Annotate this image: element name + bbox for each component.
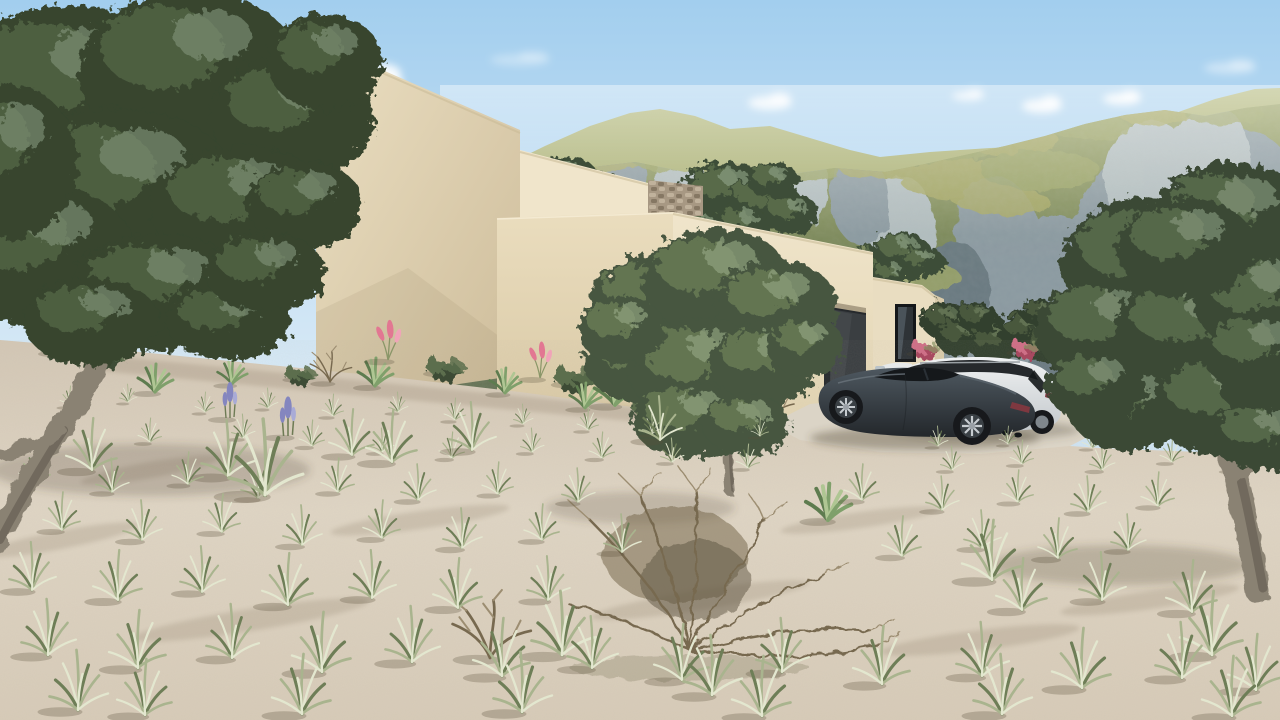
grass-shadow bbox=[1135, 505, 1161, 510]
grass-shadow bbox=[1084, 470, 1104, 474]
grass-shadow bbox=[510, 424, 525, 427]
canopy-highlight bbox=[256, 242, 298, 266]
canopy-highlight bbox=[787, 198, 807, 211]
canopy-highlight bbox=[769, 167, 787, 178]
grass-shadow bbox=[1064, 511, 1091, 517]
grass-shadow bbox=[1104, 549, 1131, 555]
cloud bbox=[1229, 59, 1255, 69]
plant-shadow bbox=[208, 417, 236, 423]
canopy-highlight bbox=[146, 249, 210, 284]
coupe-front-wheel bbox=[829, 390, 863, 424]
canopy-highlight bbox=[767, 272, 810, 300]
grass-shadow bbox=[166, 483, 190, 488]
canopy-highlight bbox=[1089, 359, 1124, 381]
grass-shadow bbox=[875, 555, 905, 561]
grass-shadow bbox=[476, 493, 500, 498]
grass-shadow bbox=[356, 537, 385, 543]
grass-shadow bbox=[516, 452, 534, 456]
grass-shadow bbox=[394, 499, 421, 505]
coupe-rear-wheel bbox=[953, 407, 991, 445]
cloud bbox=[519, 51, 549, 61]
grass-shadow bbox=[748, 437, 762, 440]
grass-shadow bbox=[1031, 557, 1061, 563]
grass-shadow bbox=[656, 462, 674, 466]
canopy-highlight bbox=[940, 307, 957, 318]
canopy-highlight bbox=[888, 265, 903, 273]
grass-shadow bbox=[936, 470, 954, 474]
grass-shadow bbox=[134, 442, 152, 446]
grass-shadow bbox=[36, 529, 65, 535]
grass-shadow bbox=[518, 539, 545, 545]
rendered-scene bbox=[0, 0, 1280, 720]
grass-shadow bbox=[116, 403, 130, 406]
canopy-highlight bbox=[1176, 211, 1225, 241]
grass-shadow bbox=[89, 491, 115, 496]
canopy-highlight bbox=[919, 251, 935, 260]
grass-shadow bbox=[732, 468, 750, 472]
grass-shadow bbox=[294, 446, 314, 450]
grass-shadow bbox=[1079, 448, 1094, 451]
grass-shadow bbox=[318, 416, 335, 420]
plant-shadow bbox=[310, 381, 335, 386]
canopy-highlight bbox=[897, 237, 917, 248]
grass-shadow bbox=[1006, 464, 1024, 468]
canopy-highlight bbox=[316, 26, 357, 55]
grass-shadow bbox=[315, 491, 341, 496]
canopy-highlight bbox=[800, 324, 827, 342]
roof-rail bbox=[920, 362, 1020, 363]
grass-shadow bbox=[584, 458, 604, 462]
grass-shadow bbox=[255, 408, 270, 411]
canopy-highlight bbox=[82, 289, 130, 315]
grass-shadow bbox=[196, 531, 225, 537]
canopy-highlight bbox=[738, 211, 758, 222]
grass-shadow bbox=[573, 430, 590, 434]
canopy-highlight bbox=[615, 305, 646, 325]
grass-shadow bbox=[996, 501, 1020, 506]
canopy-highlight bbox=[739, 401, 770, 420]
canopy-highlight bbox=[173, 10, 251, 59]
grass-shadow bbox=[996, 445, 1010, 448]
grass-shadow bbox=[440, 420, 457, 424]
grass-shadow bbox=[919, 509, 945, 514]
grass-shadow bbox=[925, 446, 940, 449]
grass-shadow bbox=[434, 458, 454, 462]
plant-shadow bbox=[364, 359, 395, 366]
canopy-highlight bbox=[296, 172, 337, 198]
plant-shadow bbox=[518, 377, 546, 383]
grass-shadow bbox=[192, 412, 207, 415]
grass-shadow bbox=[1156, 462, 1174, 466]
grass-shadow bbox=[838, 499, 865, 505]
canopy-highlight bbox=[975, 307, 990, 316]
grass-shadow bbox=[555, 501, 581, 506]
stone-accent-wall bbox=[648, 180, 703, 216]
villa-render bbox=[0, 0, 1280, 720]
